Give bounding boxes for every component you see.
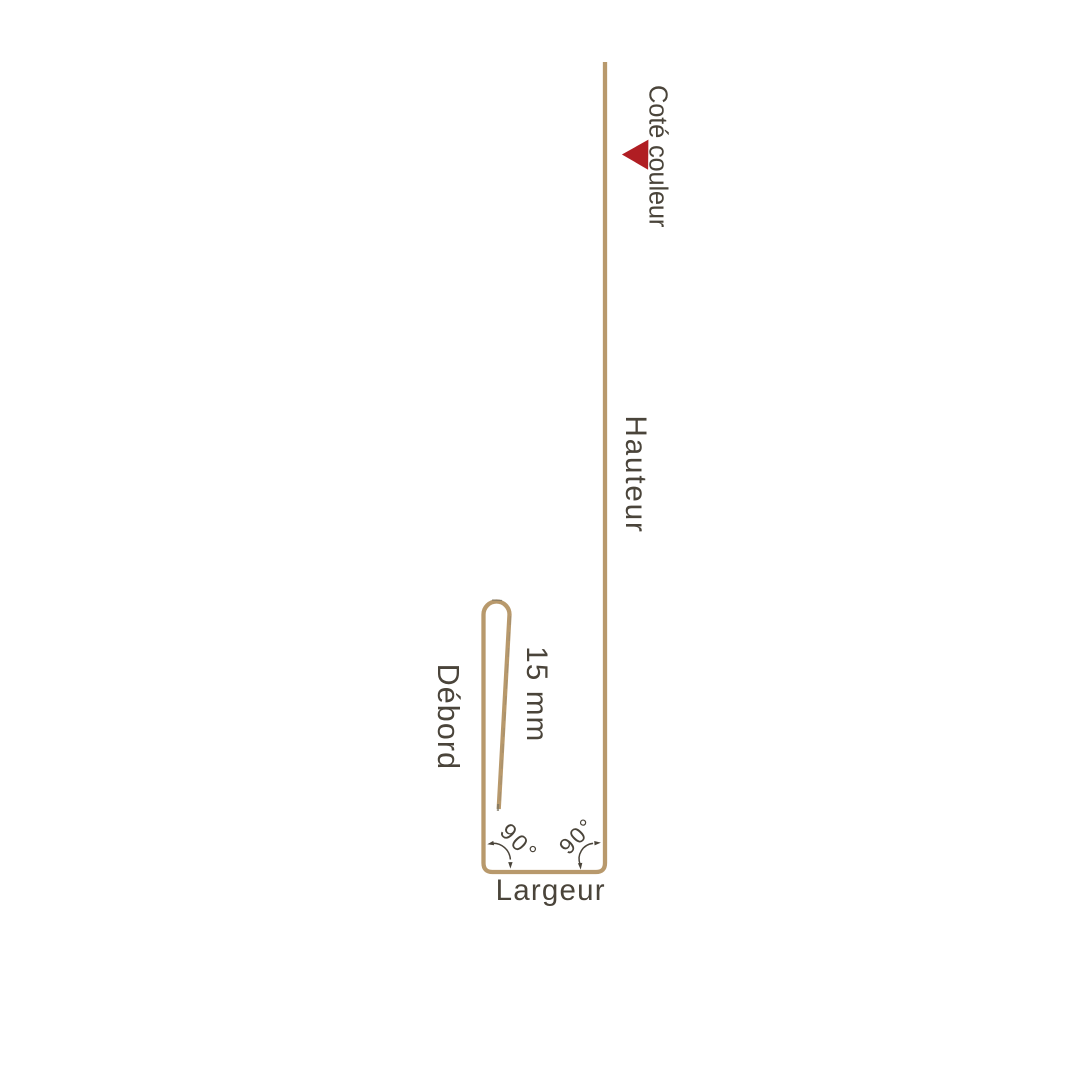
svg-text:Largeur: Largeur	[496, 874, 606, 907]
svg-text:Hauteur: Hauteur	[619, 416, 652, 534]
svg-text:15 mm: 15 mm	[520, 646, 553, 742]
svg-text:Débord: Débord	[431, 664, 465, 771]
svg-text:Coté couleur: Coté couleur	[644, 85, 672, 228]
